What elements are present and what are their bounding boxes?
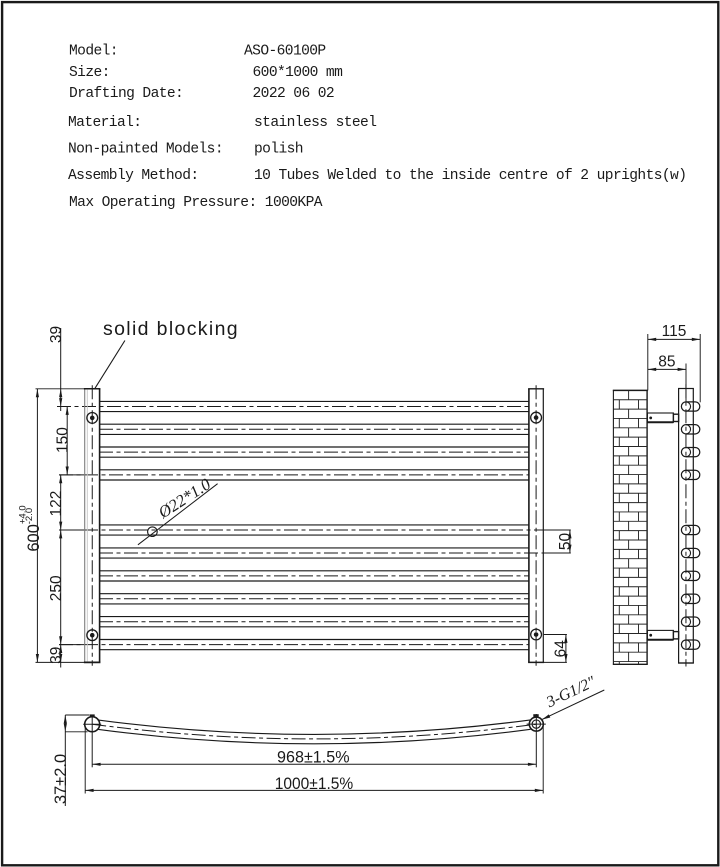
svg-text:Non-painted Models:: Non-painted Models:	[68, 142, 223, 158]
svg-text:Size:: Size:	[69, 65, 110, 81]
svg-text:39: 39	[48, 647, 65, 664]
svg-text:968±1.5%: 968±1.5%	[277, 748, 350, 767]
svg-text:polish: polish	[254, 142, 303, 158]
svg-text:Max Operating Pressure: 1000KP: Max Operating Pressure: 1000KPA	[69, 195, 323, 211]
svg-text:Material:: Material:	[68, 115, 141, 131]
svg-text:2022 06 02: 2022 06 02	[253, 86, 335, 102]
svg-text:ASO-60100P: ASO-60100P	[244, 44, 326, 60]
svg-text:37±2.0: 37±2.0	[52, 754, 70, 804]
svg-text:85: 85	[658, 353, 675, 370]
svg-text:39: 39	[48, 326, 65, 343]
svg-text:600*1000 mm: 600*1000 mm	[253, 65, 344, 81]
svg-text:64: 64	[552, 640, 569, 658]
svg-text:10 Tubes Welded to the inside: 10 Tubes Welded to the inside centre of …	[254, 168, 686, 184]
svg-text:stainless steel: stainless steel	[254, 115, 376, 131]
svg-text:solid blocking: solid blocking	[103, 318, 239, 340]
svg-text:Ø22*1.0: Ø22*1.0	[154, 474, 215, 523]
svg-text:250: 250	[48, 575, 65, 601]
svg-text:Drafting Date:: Drafting Date:	[69, 86, 183, 102]
svg-text:600+4.0-2.0: 600+4.0-2.0	[17, 505, 42, 551]
svg-text:150: 150	[54, 427, 71, 453]
svg-text:115: 115	[662, 323, 687, 340]
svg-text:122: 122	[48, 491, 65, 517]
svg-text:50: 50	[557, 533, 574, 551]
svg-text:Assembly Method:: Assembly Method:	[68, 168, 199, 184]
svg-text:Model:: Model:	[69, 44, 118, 60]
svg-text:1000±1.5%: 1000±1.5%	[275, 774, 354, 793]
